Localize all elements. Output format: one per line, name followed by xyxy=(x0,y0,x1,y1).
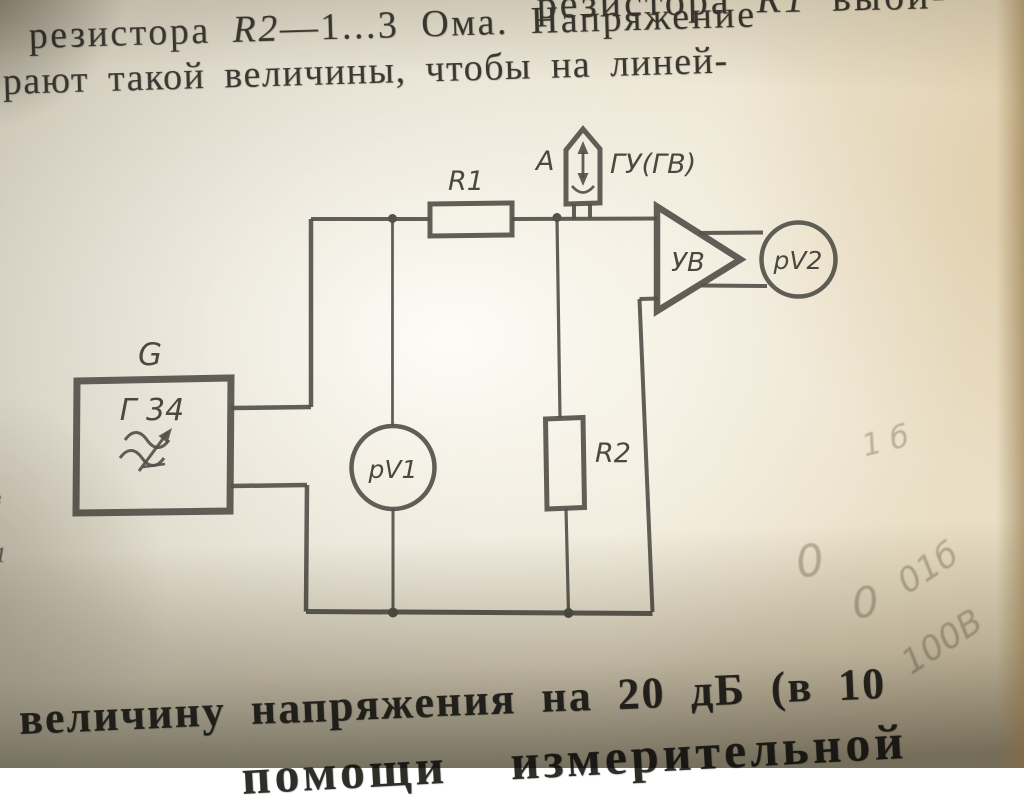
voltmeter-pv2: pV2 xyxy=(762,223,836,297)
wire-amp-feedback-vertical xyxy=(640,299,653,612)
wires xyxy=(231,213,659,618)
resistor-r1-label: R1 xyxy=(448,166,484,197)
amp-output-line-bottom xyxy=(701,286,767,287)
sine-wave-2 xyxy=(120,451,164,466)
resistor-r2-label: R2 xyxy=(595,438,631,469)
probe-arrow-head-up xyxy=(578,141,589,154)
junction-dot-pv1-top xyxy=(388,214,397,223)
amp-output-line-top xyxy=(699,233,763,234)
resistor-r1-box xyxy=(430,203,512,236)
generator-inner-label: Г 34 xyxy=(120,393,184,428)
amplifier: УВ xyxy=(657,207,767,312)
circuit-diagram: G Г 34 xyxy=(0,0,1024,768)
generator-block: G Г 34 xyxy=(76,337,231,513)
generator-top-label: G xyxy=(138,337,162,373)
wire-top-right xyxy=(512,219,657,220)
wire-left-vertical-bottom xyxy=(306,485,307,612)
wire-generator-bottom-stub xyxy=(231,485,307,486)
probe-label-a: A xyxy=(534,146,554,177)
amplifier-label: УВ xyxy=(671,248,705,278)
probe-symbol: A ГУ(ГВ) xyxy=(534,129,696,219)
variable-sine-icon xyxy=(120,428,172,471)
resistor-r1: R1 xyxy=(430,166,512,236)
voltmeter-pv1-label: pV1 xyxy=(368,455,418,484)
junction-dot-pv1-bottom xyxy=(388,608,398,618)
probe-arc xyxy=(572,186,594,193)
book-page-photo: резистора R1 выби- резистора R2—1...3 Ом… xyxy=(0,0,1024,768)
voltmeter-pv1: pV1 xyxy=(352,426,435,509)
resistor-r2-box xyxy=(546,418,585,510)
wire-generator-top-stub xyxy=(231,407,311,408)
wire-r2-bottom xyxy=(566,508,569,613)
probe-label-gu-gv: ГУ(ГВ) xyxy=(610,149,696,180)
junction-dot-probe xyxy=(553,213,562,222)
wire-bottom-bus xyxy=(306,612,653,614)
resistor-r2: R2 xyxy=(546,418,631,510)
wire-r2-top xyxy=(557,218,560,418)
voltmeter-pv2-label: pV2 xyxy=(773,246,823,275)
junction-dot-r2-bottom xyxy=(564,608,574,618)
probe-arrow-head-down xyxy=(578,173,589,186)
